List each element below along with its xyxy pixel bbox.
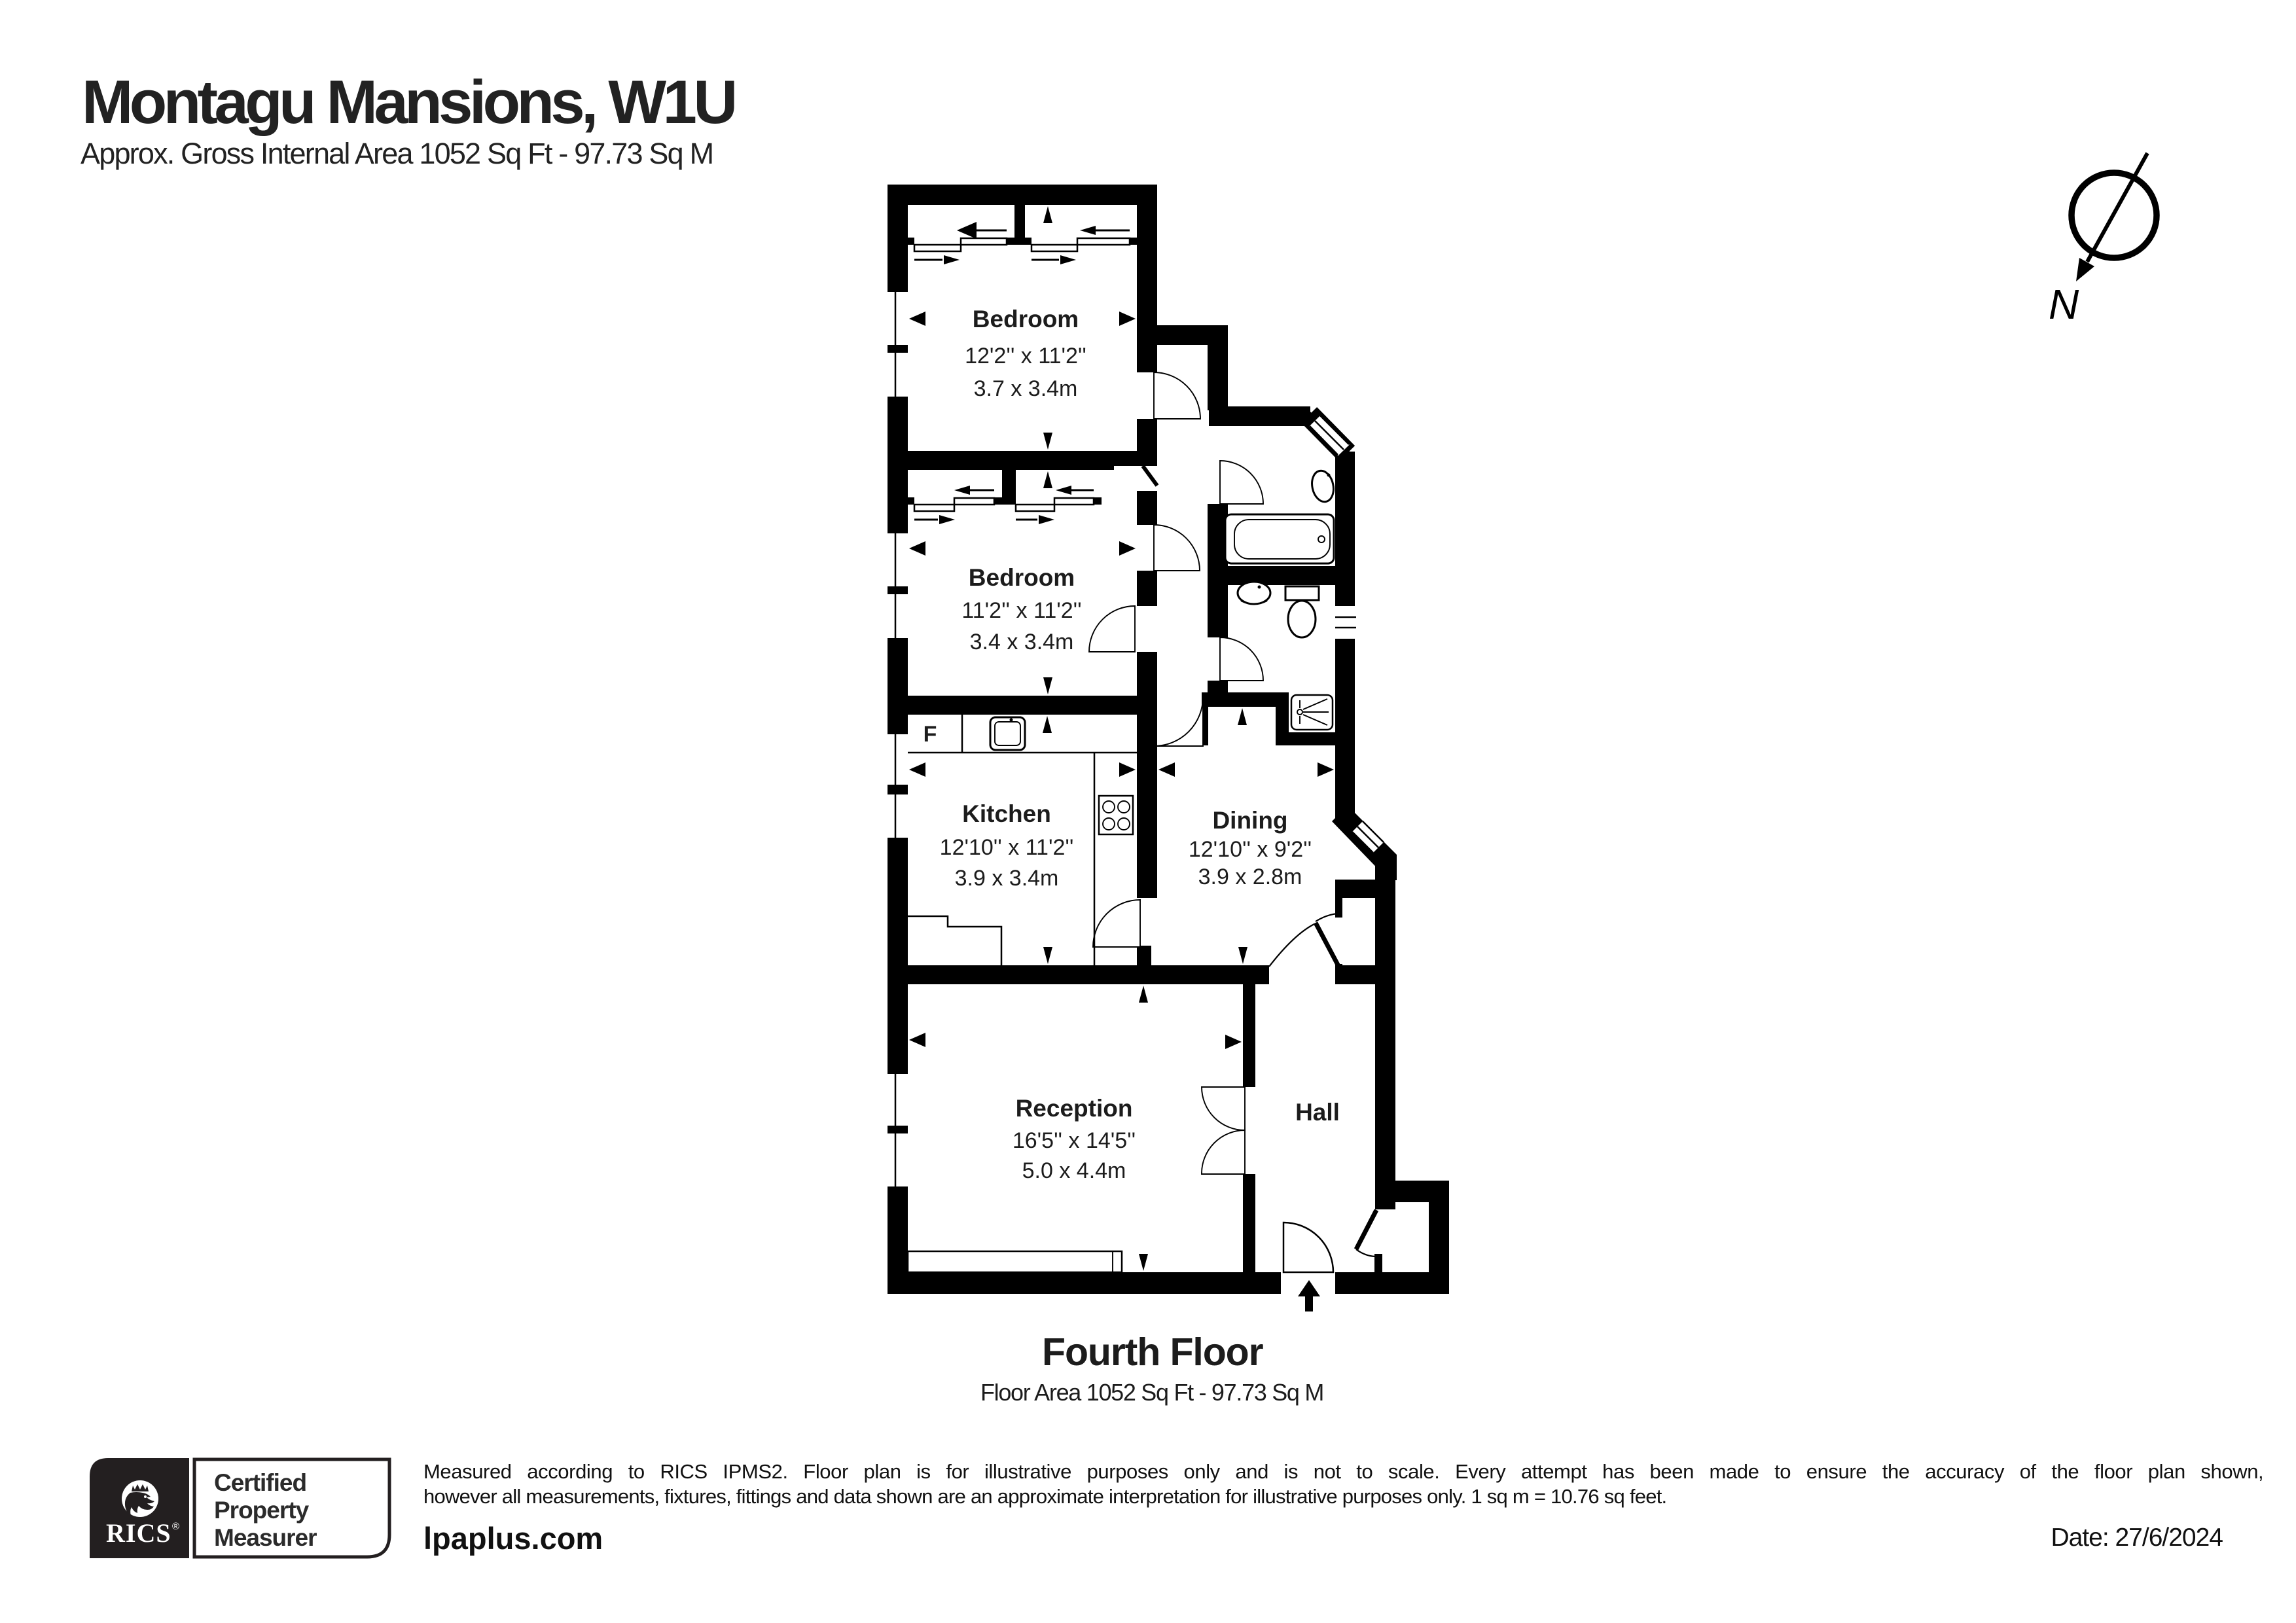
svg-text:Bedroom: Bedroom — [973, 306, 1079, 332]
svg-text:Measurer: Measurer — [214, 1524, 317, 1551]
svg-text:Floor Area 1052 Sq Ft - 97.73: Floor Area 1052 Sq Ft - 97.73 Sq M — [980, 1379, 1323, 1406]
svg-text:however all measurements, fixt: however all measurements, fixtures, fitt… — [423, 1485, 1666, 1508]
svg-text:16'5'' x 14'5'': 16'5'' x 14'5'' — [1013, 1128, 1136, 1153]
svg-text:Bedroom: Bedroom — [969, 564, 1075, 591]
svg-text:3.7 x 3.4m: 3.7 x 3.4m — [974, 376, 1078, 401]
svg-text:12'2'' x 11'2'': 12'2'' x 11'2'' — [965, 344, 1086, 368]
svg-text:F: F — [924, 722, 937, 747]
svg-text:Montagu Mansions, W1U: Montagu Mansions, W1U — [82, 67, 734, 136]
svg-text:Dining: Dining — [1212, 807, 1287, 834]
svg-text:Approx. Gross Internal Area 10: Approx. Gross Internal Area 1052 Sq Ft -… — [81, 137, 713, 170]
svg-text:Reception: Reception — [1016, 1095, 1133, 1122]
svg-text:12'10'' x 9'2'': 12'10'' x 9'2'' — [1189, 837, 1312, 862]
svg-text:Certified: Certified — [214, 1469, 306, 1496]
svg-text:5.0 x 4.4m: 5.0 x 4.4m — [1022, 1158, 1126, 1183]
svg-text:11'2'' x 11'2'': 11'2'' x 11'2'' — [961, 598, 1081, 623]
svg-text:Kitchen: Kitchen — [962, 800, 1051, 827]
svg-text:®: ® — [172, 1521, 179, 1532]
svg-text:RICS: RICS — [106, 1518, 171, 1548]
svg-text:lpaplus.com: lpaplus.com — [423, 1521, 603, 1556]
svg-text:3.9 x 2.8m: 3.9 x 2.8m — [1198, 865, 1302, 889]
svg-text:3.4 x 3.4m: 3.4 x 3.4m — [970, 630, 1074, 654]
svg-text:Property: Property — [214, 1497, 310, 1524]
svg-text:3.9 x 3.4m: 3.9 x 3.4m — [955, 866, 1059, 891]
svg-text:12'10'' x 11'2'': 12'10'' x 11'2'' — [940, 835, 1074, 860]
svg-text:Date: 27/6/2024: Date: 27/6/2024 — [2051, 1524, 2223, 1552]
svg-text:N: N — [2049, 281, 2079, 328]
svg-text:Measured according to RICS IPM: Measured according to RICS IPMS2. Floor … — [423, 1460, 2263, 1483]
svg-text:Hall: Hall — [1295, 1099, 1340, 1126]
svg-text:Fourth Floor: Fourth Floor — [1042, 1330, 1264, 1374]
